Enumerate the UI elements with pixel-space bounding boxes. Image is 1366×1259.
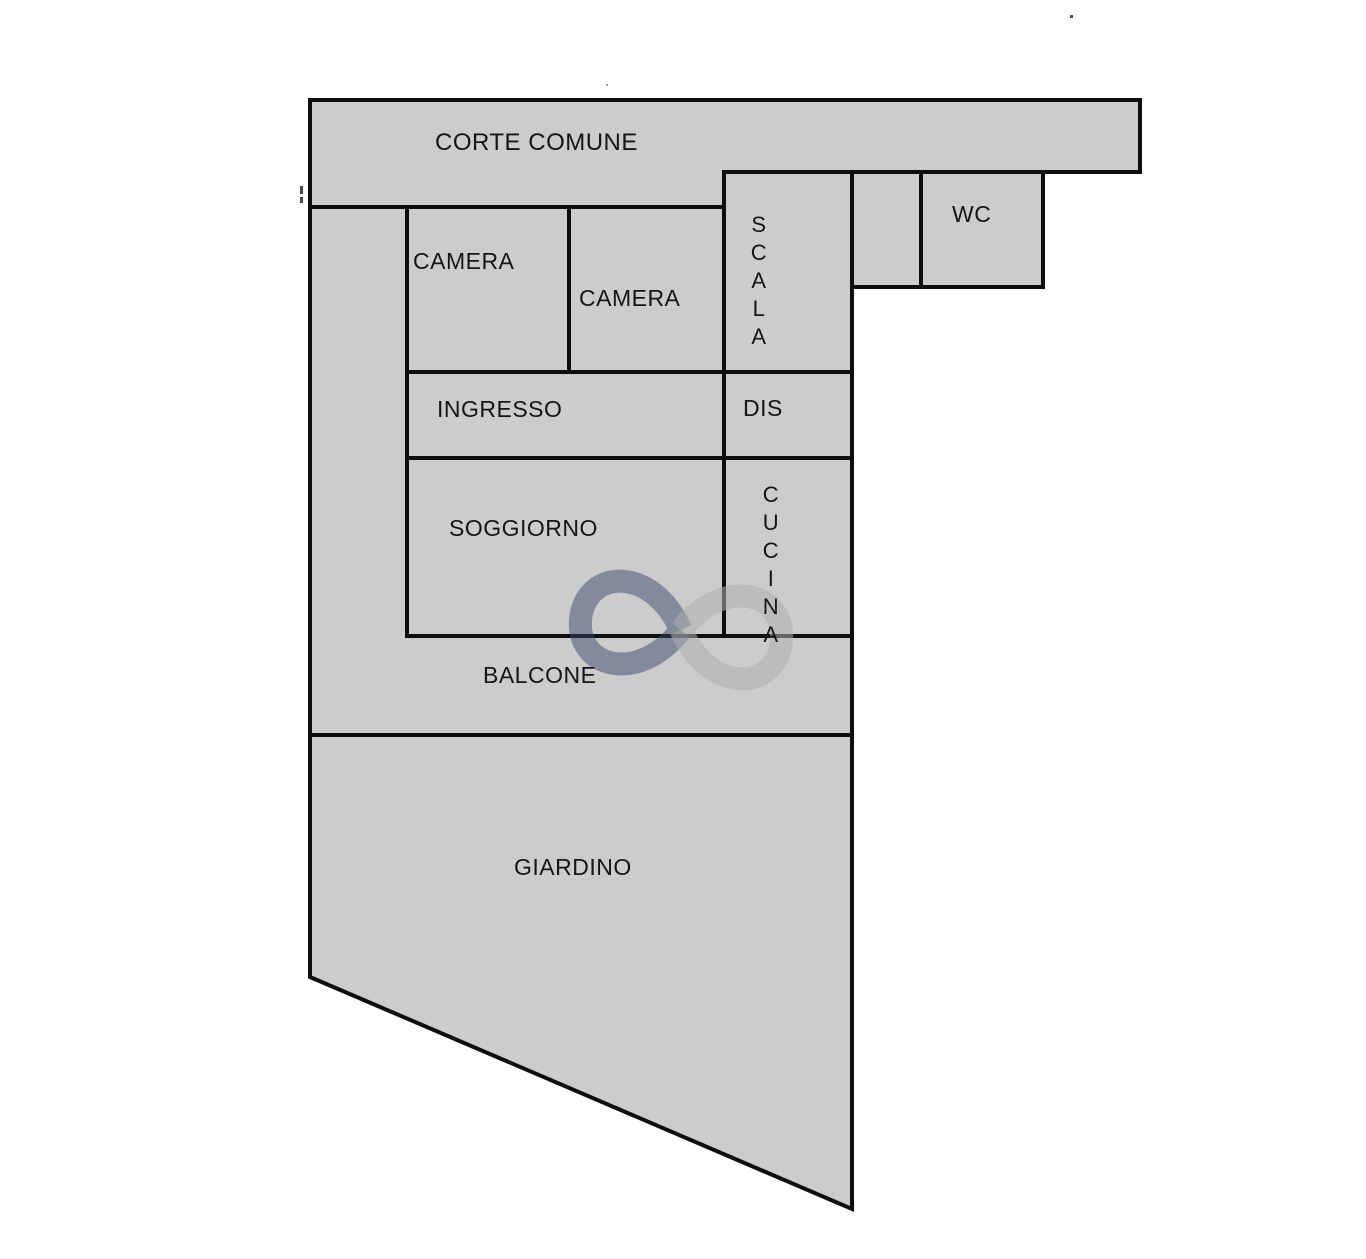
label-camera-1: CAMERA	[413, 247, 514, 275]
artifact-dot	[1070, 15, 1073, 18]
area-giardino	[310, 735, 852, 1209]
artifact-dot	[300, 186, 303, 194]
artifact-dot	[606, 84, 608, 86]
floor-plan-shapes	[0, 0, 1366, 1259]
label-soggiorno: SOGGIORNO	[449, 514, 598, 542]
area-camera-1	[407, 207, 569, 372]
area-cucina	[724, 458, 852, 636]
label-wc: WC	[952, 200, 991, 228]
label-giardino: GIARDINO	[514, 853, 632, 881]
area-lightblue-room	[852, 172, 921, 287]
label-cucina: CUCINA	[756, 481, 786, 649]
area-wc	[921, 172, 1043, 287]
floor-plan: CORTE COMUNE CAMERA CAMERA SCALA WC INGR…	[0, 0, 1366, 1259]
label-dis: DIS	[743, 394, 783, 422]
label-camera-2: CAMERA	[579, 284, 680, 312]
label-ingresso: INGRESSO	[437, 395, 562, 423]
artifact-dot	[300, 197, 303, 203]
label-balcone: BALCONE	[483, 661, 596, 689]
label-corte-comune: CORTE COMUNE	[435, 129, 638, 157]
label-scala: SCALA	[744, 211, 774, 351]
